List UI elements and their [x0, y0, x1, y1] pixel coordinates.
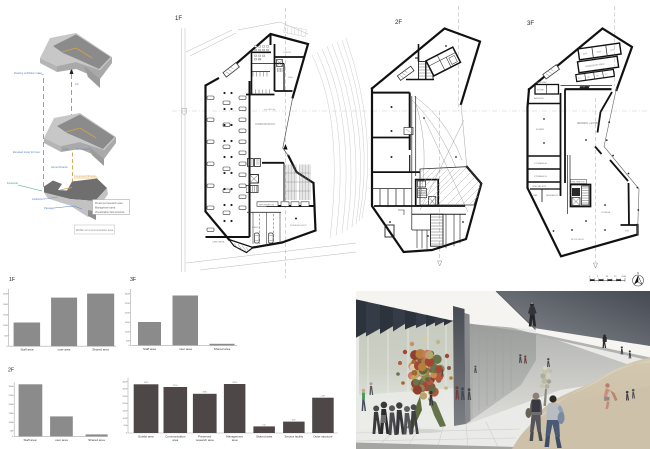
svg-text:user area: user area [55, 438, 68, 442]
svg-text:ARCHIVE: ARCHIVE [534, 97, 544, 100]
svg-text:N: N [637, 271, 639, 275]
svg-text:MUSE-ium Communication area: MUSE-ium Communication area [76, 228, 114, 232]
svg-text:Service facility: Service facility [285, 434, 304, 438]
svg-text:Passage: Passage [44, 206, 55, 210]
svg-text:Lift: Lift [75, 82, 79, 86]
svg-text:x=(+45)+4y: x=(+45)+4y [264, 109, 276, 111]
svg-text:research area: research area [196, 438, 214, 442]
svg-text:Shared area: Shared area [88, 438, 105, 442]
svg-text:1F: 1F [9, 277, 15, 283]
svg-text:CAFE AREA: CAFE AREA [212, 241, 225, 244]
svg-text:MUSEUM SHOP: MUSEUM SHOP [290, 225, 307, 227]
svg-text:Shared area: Shared area [256, 434, 272, 438]
svg-text:area: area [232, 438, 238, 442]
svg-text:2F: 2F [395, 20, 402, 26]
svg-text:Compound libraries: Compound libraries [74, 174, 97, 178]
svg-text:WC: WC [258, 59, 262, 61]
svg-text:20M: 20M [622, 276, 626, 278]
svg-text:3F: 3F [130, 277, 136, 283]
svg-text:Outer structure: Outer structure [313, 434, 333, 438]
svg-text:STORAGE A: STORAGE A [534, 162, 547, 165]
svg-text:2000: 2000 [288, 77, 294, 79]
svg-text:Area: Area [63, 147, 69, 151]
svg-text:Exhibit area: Exhibit area [138, 434, 154, 438]
svg-text:STORE: STORE [537, 90, 545, 92]
svg-text:ROOF DECK: ROOF DECK [571, 239, 585, 241]
svg-text:RAMP: RAMP [252, 226, 259, 229]
svg-text:2F: 2F [8, 368, 14, 374]
svg-text:DRAWING + EXHIBIT: DRAWING + EXHIBIT [577, 122, 600, 125]
svg-text:LOUNGE: LOUNGE [601, 212, 611, 214]
svg-text:Preserved research area: Preserved research area [95, 202, 123, 205]
svg-text:user area: user area [58, 348, 71, 352]
svg-text:Restaurant: Restaurant [76, 147, 89, 151]
svg-text:Staff area: Staff area [143, 347, 156, 351]
svg-text:EXHIBIT: EXHIBIT [536, 129, 545, 131]
svg-text:Elevated tower for lives: Elevated tower for lives [13, 150, 41, 154]
svg-text:Floating exhibition room: Floating exhibition room [14, 71, 42, 75]
svg-text:Home libraries: Home libraries [51, 165, 68, 169]
svg-text:1F: 1F [175, 16, 182, 22]
svg-text:Staff area: Staff area [24, 438, 37, 442]
svg-text:COMMUNICATION: COMMUNICATION [255, 123, 275, 126]
svg-text:Shared area: Shared area [92, 348, 109, 352]
svg-text:Auditorium: Auditorium [32, 197, 44, 201]
svg-text:STORAGE B: STORAGE B [534, 175, 547, 178]
svg-text:Management area: Management area [95, 207, 116, 210]
svg-text:3F: 3F [527, 21, 534, 27]
svg-text:Shared area: Shared area [214, 347, 231, 351]
svg-text:Forecourt: Forecourt [7, 181, 18, 185]
svg-text:RAMP WAY: RAMP WAY [536, 81, 547, 84]
svg-text:LAB: LAB [533, 194, 538, 197]
svg-text:OFFICE: OFFICE [283, 52, 292, 54]
svg-text:SPECIAL STR: SPECIAL STR [532, 185, 547, 188]
svg-text:Staff area: Staff area [21, 348, 34, 352]
svg-text:RESEARCH: RESEARCH [546, 194, 559, 197]
svg-text:INFORMATION: INFORMATION [259, 203, 275, 206]
svg-text:STR: STR [625, 231, 630, 233]
svg-text:area: area [172, 438, 178, 442]
svg-text:Visualization field structure: Visualization field structure [95, 211, 125, 214]
svg-text:user area: user area [179, 347, 192, 351]
svg-text:MACHINE RM: MACHINE RM [572, 181, 585, 184]
